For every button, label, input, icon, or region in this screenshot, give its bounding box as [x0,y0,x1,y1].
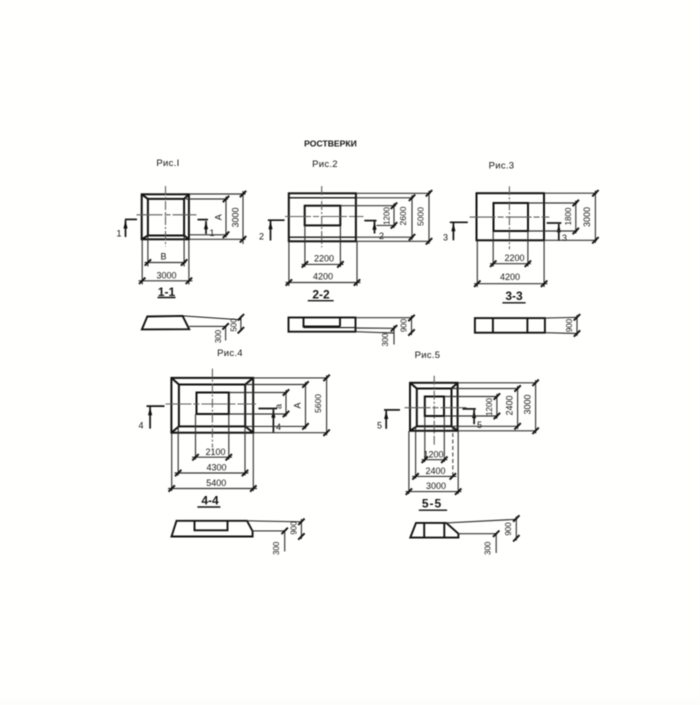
svg-text:Рис.5: Рис.5 [415,350,441,361]
svg-text:300: 300 [381,333,390,347]
svg-text:5-5: 5-5 [422,497,442,511]
svg-text:300: 300 [214,329,223,343]
svg-text:Рис.4: Рис.4 [217,348,243,359]
svg-text:3000: 3000 [231,207,241,227]
svg-text:5400: 5400 [206,478,226,488]
svg-text:1: 1 [116,229,121,239]
svg-text:А: А [292,402,302,408]
svg-text:1800: 1800 [564,207,573,225]
svg-text:1200: 1200 [485,398,494,416]
svg-text:4-4: 4-4 [201,494,219,508]
svg-text:5000: 5000 [416,207,426,226]
svg-text:3-3: 3-3 [505,289,523,303]
svg-text:5600: 5600 [313,394,323,413]
svg-text:Рис.2: Рис.2 [312,159,338,170]
svg-text:2100: 2100 [205,447,225,457]
svg-text:Рис.3: Рис.3 [489,161,515,172]
svg-text:В: В [160,252,166,262]
svg-text:300: 300 [272,541,281,555]
svg-text:2: 2 [259,232,264,242]
svg-text:4: 4 [276,422,281,432]
svg-text:2600: 2600 [398,206,408,225]
svg-text:900: 900 [565,318,574,332]
svg-text:А: А [214,214,224,220]
svg-text:2400: 2400 [504,395,514,415]
svg-text:2-2: 2-2 [312,288,330,302]
svg-text:5: 5 [377,421,382,431]
svg-text:3000: 3000 [426,481,446,491]
svg-text:900: 900 [399,318,408,332]
svg-text:4: 4 [138,421,143,431]
svg-text:900: 900 [504,522,513,536]
svg-text:4200: 4200 [313,271,333,281]
svg-text:5: 5 [477,420,482,430]
svg-text:2200: 2200 [314,253,334,263]
svg-text:2: 2 [379,231,384,241]
svg-text:2200: 2200 [504,253,524,263]
svg-text:900: 900 [290,521,299,535]
svg-text:1200: 1200 [383,207,392,225]
svg-text:500: 500 [229,318,238,332]
svg-text:1: 1 [209,228,214,238]
svg-text:300: 300 [484,541,493,555]
svg-text:3: 3 [443,233,448,243]
svg-text:2400: 2400 [425,466,445,476]
svg-text:1200: 1200 [423,449,443,459]
svg-text:3: 3 [562,233,567,243]
svg-text:РОСТВЕРКИ: РОСТВЕРКИ [304,139,357,149]
svg-text:а: а [273,404,283,409]
svg-text:4300: 4300 [206,463,226,473]
svg-text:Рис.I: Рис.I [156,158,179,169]
svg-text:3000: 3000 [582,207,592,227]
svg-text:4200: 4200 [500,272,520,282]
svg-text:3000: 3000 [156,271,176,281]
svg-text:3000: 3000 [522,394,532,414]
